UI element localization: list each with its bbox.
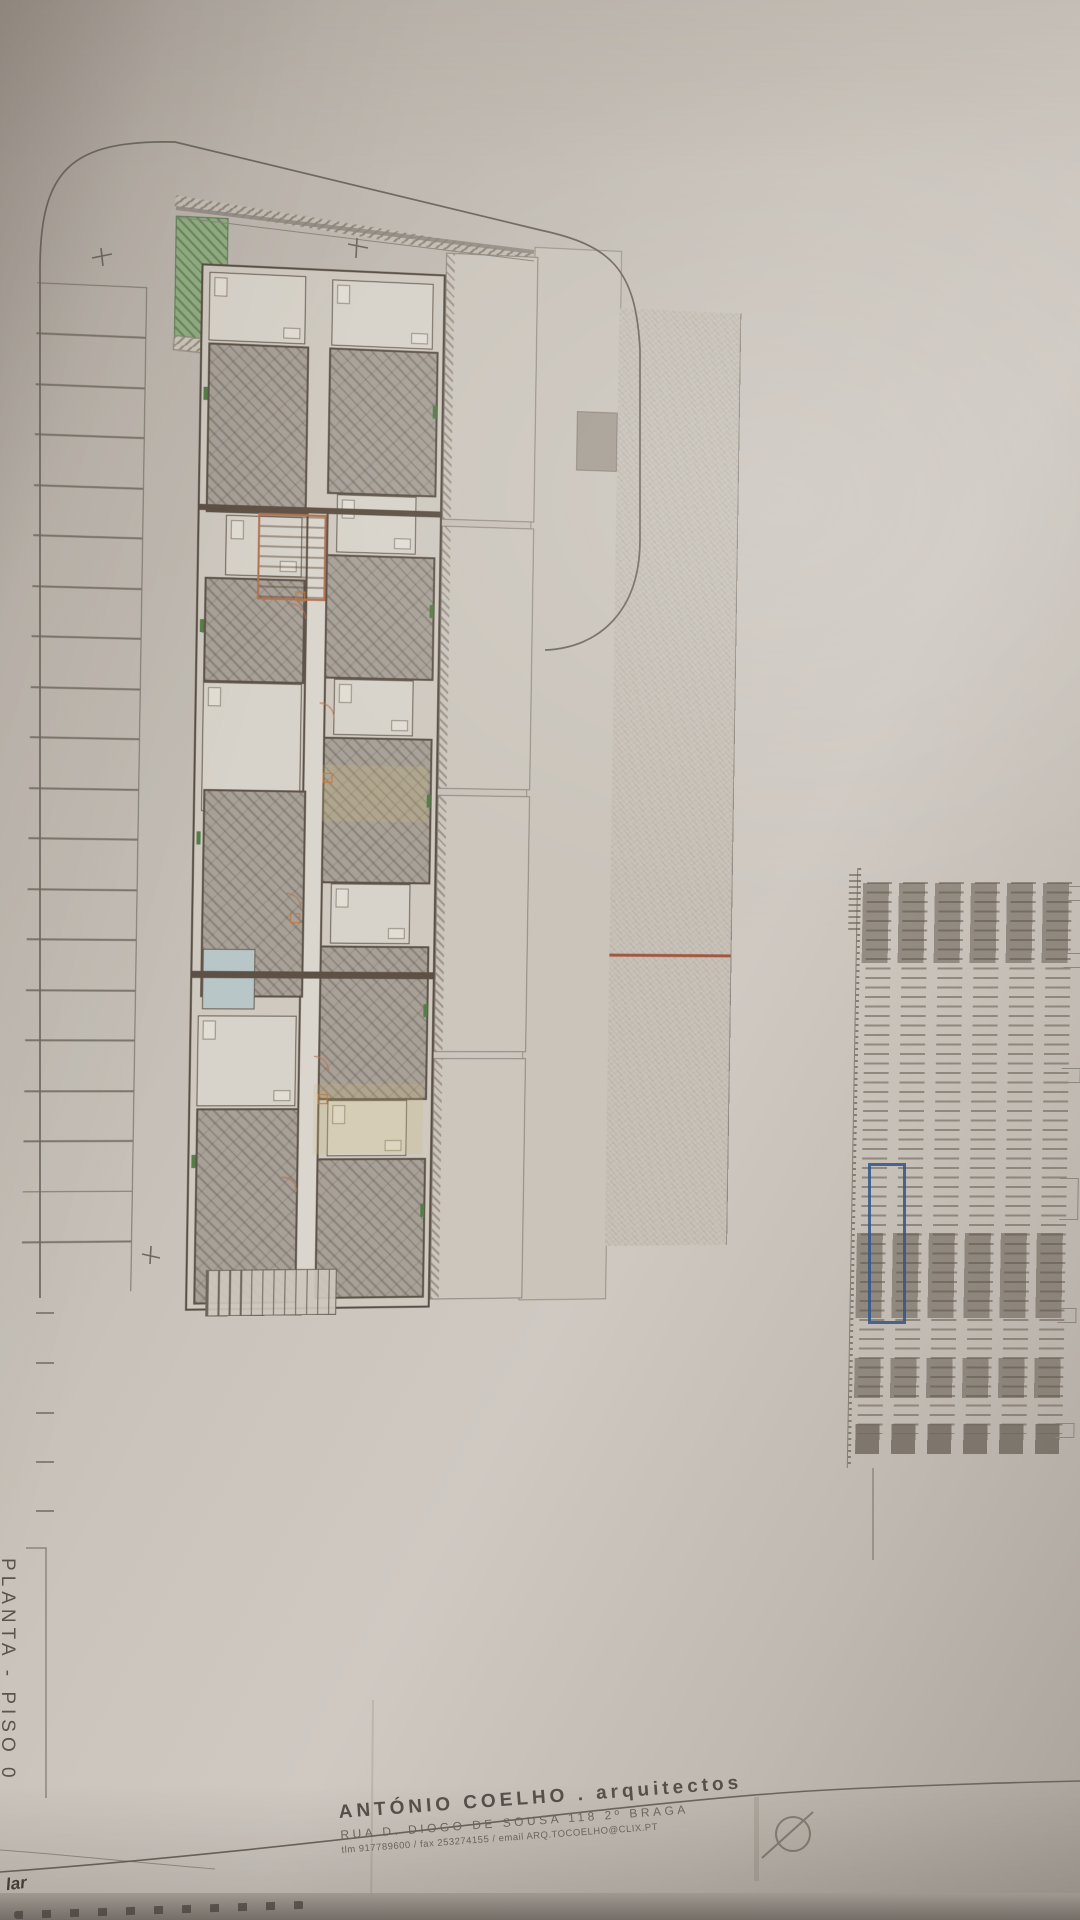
dimension-bracket xyxy=(1059,1178,1079,1220)
bathroom-cluster xyxy=(196,1015,296,1106)
yellow-marking xyxy=(313,1084,424,1154)
orange-mark xyxy=(295,591,305,601)
yellow-marking xyxy=(322,765,428,823)
table-row-label-strip xyxy=(848,874,858,932)
window-mark xyxy=(423,1004,427,1017)
dimension-bracket xyxy=(1057,1308,1076,1323)
pale-blue-room xyxy=(202,949,256,1010)
table-column xyxy=(1001,882,1036,1434)
window-mark xyxy=(420,1204,424,1217)
yard-gray-block xyxy=(576,411,618,472)
patio xyxy=(434,795,530,1052)
orange-mark xyxy=(322,773,332,783)
patio xyxy=(430,1058,526,1299)
room-hatched xyxy=(324,554,435,681)
table-column xyxy=(857,882,892,1434)
corner-handwriting: lar xyxy=(5,1873,28,1895)
window-mark xyxy=(433,406,437,419)
cutoff-handwriting xyxy=(14,1901,304,1919)
table-bold-band xyxy=(854,1358,1069,1398)
table-column xyxy=(929,882,964,1434)
dimension-bracket xyxy=(1055,1423,1074,1438)
table-tail-line xyxy=(872,1468,874,1560)
building-outline xyxy=(185,263,446,1310)
window-mark xyxy=(191,1155,195,1168)
bathroom xyxy=(333,679,414,737)
party-wall xyxy=(192,971,433,979)
table-footer-row xyxy=(855,1424,1068,1454)
table-header-band xyxy=(862,883,1077,963)
parking-stalls xyxy=(21,282,147,1292)
stair-core xyxy=(257,513,327,601)
service-room xyxy=(331,279,433,349)
door-arc xyxy=(319,702,334,717)
patio xyxy=(442,253,538,523)
photographed-floor-plan-sheet: PLANTA - PISO 0 ANTÓNIO COELHO . arquite… xyxy=(0,0,1080,1920)
room-hatched xyxy=(327,347,439,497)
patio xyxy=(438,526,534,791)
exterior-stairs xyxy=(205,1269,337,1317)
window-mark xyxy=(200,619,204,632)
service-room xyxy=(208,272,306,345)
pavement-strip xyxy=(605,308,741,1246)
orange-mark xyxy=(317,1094,327,1104)
table-column xyxy=(965,882,1000,1434)
bathroom xyxy=(330,883,411,944)
red-kerb-line xyxy=(609,954,730,957)
window-mark xyxy=(427,795,431,808)
table-column xyxy=(893,882,928,1434)
window-mark xyxy=(430,605,434,618)
dimension-bracket xyxy=(1063,953,1080,968)
bathroom xyxy=(336,494,417,555)
room-hatched xyxy=(317,945,429,1100)
dimension-bracket xyxy=(1061,1068,1080,1083)
window-mark xyxy=(196,831,200,844)
dimension-bracket xyxy=(1065,886,1080,901)
orange-mark xyxy=(290,913,300,923)
room-hatched xyxy=(206,342,310,515)
plan-title-vertical: PLANTA - PISO 0 xyxy=(0,1558,18,1783)
sheet-bottom-edge xyxy=(0,1893,1080,1920)
blue-highlight-box xyxy=(868,1163,906,1324)
window-mark xyxy=(203,387,207,400)
